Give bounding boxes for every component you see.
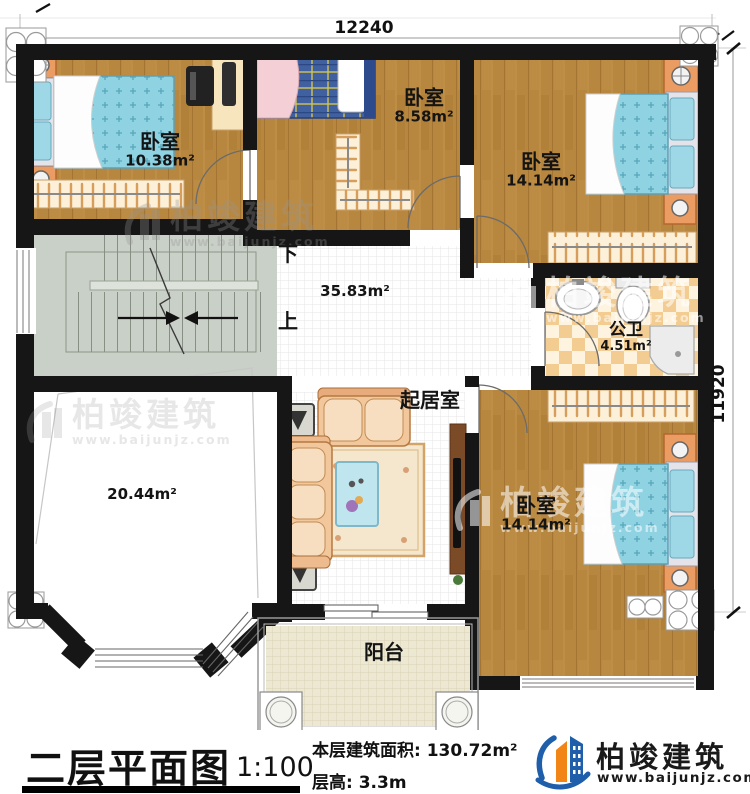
room-label-bedroom-bottom-right: 卧室 14.14m² xyxy=(501,494,571,533)
sofa-cushion xyxy=(289,485,325,519)
hall-vestibule-floor xyxy=(460,278,531,376)
balcony-structure xyxy=(258,618,478,732)
brand-website: www.baijunjz.com xyxy=(597,770,750,786)
dimension-top: 12240 xyxy=(334,18,393,38)
title-block: 二层平面图 1:100 本层建筑面积: 130.72m² 层高: 3.3m 柏竣… xyxy=(0,730,750,794)
blanket xyxy=(257,52,299,118)
room-label-open-space: 20.44m² xyxy=(107,485,177,503)
brand-logo-icon xyxy=(534,734,592,790)
balcony-sliding-door xyxy=(324,605,428,618)
lamp xyxy=(672,570,688,586)
floor-plan-stage: 柏竣建筑 www.baijunjz.com 柏竣建筑 www.baijunjz.… xyxy=(0,0,750,794)
sofa-cushion xyxy=(289,522,325,556)
shower-drain xyxy=(675,351,681,357)
toilet xyxy=(617,286,649,324)
floor-area-text: 本层建筑面积: 130.72m² xyxy=(312,736,517,761)
room-label-bedroom-top-left: 卧室 10.38m² xyxy=(125,130,195,169)
room-label-bedroom-top-middle: 卧室 8.58m² xyxy=(394,86,453,125)
shower-tray xyxy=(650,326,694,374)
sofa-cushion xyxy=(324,399,362,441)
floor-plan-drawing xyxy=(0,0,750,734)
hall-floor xyxy=(277,246,460,376)
plant xyxy=(453,575,463,585)
dimension-right: 11920 xyxy=(709,364,729,423)
brand-logo: 柏竣建筑 www.baijunjz.com xyxy=(534,734,750,792)
room-label-living-room: 起居室 xyxy=(400,389,460,411)
stair-up-label: 上 xyxy=(278,310,298,332)
sofa-cushion xyxy=(289,448,325,482)
lamp xyxy=(672,200,688,216)
sofa-cushion xyxy=(365,399,403,441)
lamp xyxy=(672,442,688,458)
bay-window xyxy=(95,612,263,676)
coffee-table xyxy=(336,462,378,526)
pc-tower xyxy=(222,62,236,106)
pillow xyxy=(670,146,694,188)
staircase xyxy=(66,235,270,354)
room-label-balcony: 阳台 xyxy=(364,641,404,663)
pillow xyxy=(338,56,366,112)
pillow xyxy=(670,470,694,512)
drawing-scale: 1:100 xyxy=(236,752,314,783)
faucet xyxy=(572,279,584,285)
floor-info: 本层建筑面积: 130.72m² 层高: 3.3m xyxy=(312,736,517,793)
room-label-bathroom: 公卫 4.51m² xyxy=(600,321,651,355)
room-label-bedroom-top-right: 卧室 14.14m² xyxy=(506,150,576,189)
tv xyxy=(453,458,461,548)
title-underline xyxy=(22,786,300,793)
pillow xyxy=(670,516,694,558)
pillow xyxy=(670,98,694,140)
stair-down-label: 下 xyxy=(278,243,298,265)
room-label-hall-area: 35.83m² xyxy=(320,282,390,300)
floor-height-text: 层高: 3.3m xyxy=(312,768,517,793)
